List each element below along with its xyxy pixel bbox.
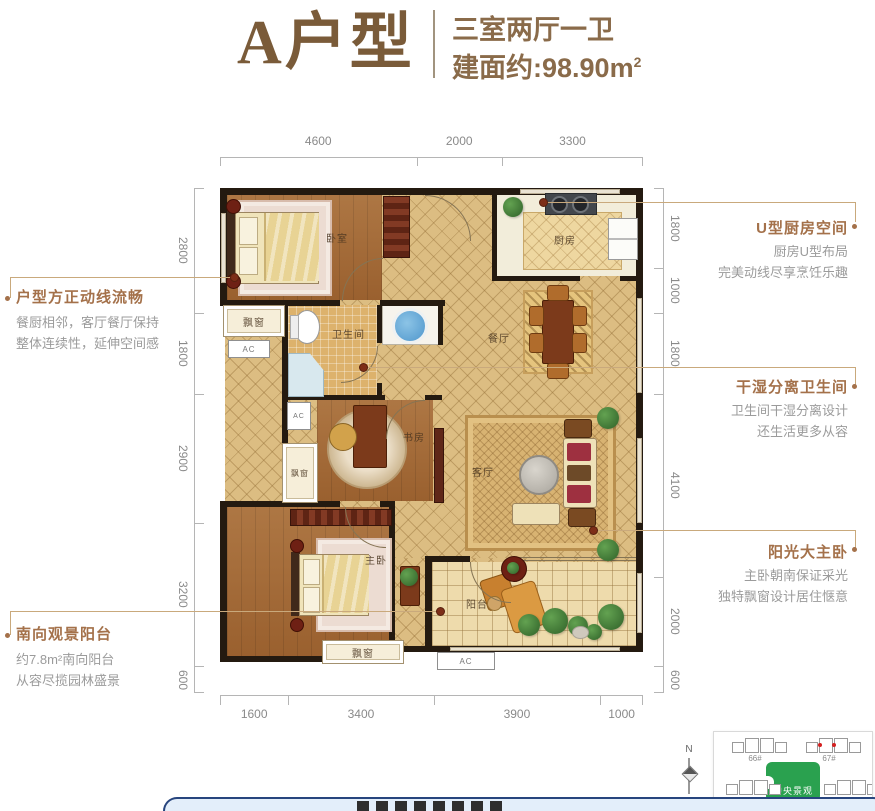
annotation-line: 卫生间干湿分离设计: [628, 400, 848, 421]
dim-label: 3300: [559, 134, 586, 148]
annotation-line: 完美动线尽享烹饪乐趣: [628, 262, 848, 283]
site-map: 66# 67# 中央景观: [713, 731, 873, 807]
nightstand: [226, 199, 241, 214]
annotation-bullet: [5, 296, 10, 301]
wall-bath-bottom-2: [425, 395, 442, 400]
bay-window-label: 飘窗: [352, 645, 374, 660]
leader-line: [10, 277, 11, 298]
dim-label: 3400: [348, 707, 375, 721]
next-section-bar: [163, 797, 875, 811]
master-bay-window: 飘窗: [322, 640, 404, 664]
bay-window-west: 飘窗: [223, 305, 285, 337]
sofa-cushion: [567, 485, 591, 503]
armchair: [564, 419, 592, 438]
dim-label: 1800: [668, 340, 682, 367]
leader-dot: [436, 607, 445, 616]
annotation-bullet: [5, 633, 10, 638]
ac-label: AC: [293, 413, 305, 420]
compass-diamond: [682, 766, 699, 783]
dimension-left: 2800 1800 2900 3200 600: [172, 188, 195, 693]
bay-window-label: 飘窗: [243, 314, 265, 329]
annotation-line: 整体连续性，延伸空间感: [16, 333, 159, 354]
building-icon: [732, 738, 787, 753]
dining-chair: [572, 306, 587, 326]
sliding-door: [510, 557, 636, 558]
unit-marker-dot: [818, 743, 822, 747]
wall-bath-right-2: [377, 383, 382, 400]
sofa-cushion: [567, 465, 591, 481]
wardrobe-hall: [383, 196, 410, 258]
nightstand: [290, 618, 304, 632]
annotation-title: 户型方正动线流畅: [16, 286, 144, 307]
annotation-line: 还生活更多从容: [628, 421, 848, 442]
dim-label: 2000: [446, 134, 473, 148]
dim-label: 600: [668, 670, 682, 690]
annotation-body: 约7.8m²南向阳台 从容尽揽园林盛景: [16, 649, 120, 691]
dimension-bottom: 1600 3400 3900 1000: [220, 695, 643, 721]
annotation-body: 主卧朝南保证采光 独特飘窗设计居住惬意: [628, 565, 848, 607]
study-chair: [329, 423, 357, 451]
tv-wall: [434, 428, 444, 503]
living-window: [637, 438, 642, 523]
annotation-body: 厨房U型布局 完美动线尽享烹饪乐趣: [628, 241, 848, 283]
leader-line: [594, 530, 856, 531]
page-title: A户型: [237, 4, 415, 82]
area-label: 建面约:: [452, 53, 542, 83]
dining-label: 餐厅: [488, 330, 510, 345]
study-desk: [353, 405, 387, 468]
ac-platform: AC: [228, 340, 270, 358]
balcony-plant: [598, 604, 624, 630]
leader-dot: [589, 526, 598, 535]
page: A户型 三室两厅一卫 建面约:98.90m2 4600 2000 3300 16…: [0, 0, 875, 811]
annotation-body: 卫生间干湿分离设计 还生活更多从容: [628, 400, 848, 442]
pillow: [303, 559, 320, 585]
ac-platform: AC: [287, 402, 311, 430]
balcony-plant: [542, 608, 568, 634]
leader-line: [855, 202, 856, 222]
annotation-title: 阳光大主卧: [628, 541, 848, 562]
dining-chair: [547, 363, 569, 379]
toilet-tank: [290, 315, 299, 339]
annotation-line: 独特飘窗设计居住惬意: [628, 586, 848, 607]
dining-table: [542, 300, 574, 364]
leader-dot: [359, 363, 368, 372]
dim-label: 3200: [176, 581, 190, 608]
leader-dot: [230, 273, 239, 282]
dim-label: 3900: [504, 707, 531, 721]
nightstand: [290, 539, 304, 553]
dining-chair: [529, 333, 544, 353]
dimension-top: 4600 2000 3300: [220, 134, 643, 158]
floor-plan: 卧室 卫生间 厨房 餐厅 书房: [220, 188, 643, 693]
leader-line: [365, 367, 856, 368]
wall-bedroom-bottom-2: [380, 300, 445, 306]
unit-marker-dot: [832, 743, 836, 747]
wall-master-left: [220, 501, 227, 662]
area-sup: 2: [634, 54, 642, 70]
bathroom-label: 卫生间: [332, 326, 365, 341]
dim-label: 600: [176, 670, 190, 690]
cutoff-text-fragment: [357, 801, 507, 811]
leader-line: [10, 611, 440, 612]
balcony-label: 阳台: [466, 596, 488, 611]
stove-burner: [551, 196, 568, 213]
plant-nook: [400, 568, 418, 586]
dim-label: 1600: [241, 707, 268, 721]
dining-chair: [529, 306, 544, 326]
ac-label: AC: [459, 657, 472, 666]
blanket: [322, 555, 369, 613]
dim-label: 4100: [668, 472, 682, 499]
wall-kitchen-left: [492, 188, 497, 280]
blanket: [264, 213, 319, 281]
annotation-body: 餐厨相邻，客厅餐厅保持 整体连续性，延伸空间感: [16, 312, 159, 354]
area-subtitle: 建面约:98.90m2: [452, 47, 641, 84]
pillow: [239, 247, 258, 275]
leader-line: [545, 202, 856, 203]
dining-chair: [572, 333, 587, 353]
balcony-window-south: [450, 647, 620, 651]
dim-label: 2800: [176, 237, 190, 264]
bay-window-label: 飘窗: [291, 468, 309, 479]
living-label: 客厅: [472, 464, 494, 479]
master-label: 主卧: [365, 552, 387, 567]
pillow: [303, 587, 320, 613]
annotation-title: U型厨房空间: [628, 217, 848, 238]
bedroom-label: 卧室: [326, 230, 348, 245]
wall-bath-right: [377, 305, 382, 343]
annotation-line: 主卧朝南保证采光: [628, 565, 848, 586]
plant-kitchen: [503, 197, 523, 217]
armchair: [568, 508, 596, 527]
bay-window-study: 飘窗: [282, 443, 318, 503]
sliding-door-2: [510, 560, 636, 561]
building-icon: [824, 780, 873, 795]
bedroom-window: [221, 213, 226, 283]
dining-chair: [547, 285, 569, 301]
ac-label: AC: [242, 345, 255, 354]
compass-n-label: N: [676, 744, 702, 755]
dim-label: 4600: [305, 134, 332, 148]
annotation-title: 南向观景阳台: [16, 623, 112, 644]
leader-line: [10, 277, 236, 278]
balcony-plant: [518, 614, 540, 636]
building-icon: [726, 780, 781, 795]
sofa-cushion: [567, 443, 591, 461]
annotation-line: 厨房U型布局: [628, 241, 848, 262]
wall-master-top: [220, 501, 340, 507]
annotation-line: 约7.8m²南向阳台: [16, 649, 120, 670]
annotation-line: 从容尽揽园林盛景: [16, 670, 120, 691]
annotation-line: 餐厨相邻，客厅餐厅保持: [16, 312, 159, 333]
annotation-bullet: [852, 384, 857, 389]
balcony-stone: [572, 626, 589, 639]
annotation-bullet: [852, 547, 857, 552]
plant-living: [597, 407, 619, 429]
leader-line: [10, 611, 11, 635]
coffee-table: [512, 503, 560, 525]
plant-living: [597, 539, 619, 561]
wall-kitchen-bottom: [492, 276, 580, 281]
leader-dot: [539, 198, 548, 207]
area-value: 98.90m: [542, 53, 634, 83]
round-table: [519, 455, 559, 495]
dim-label: 2000: [668, 608, 682, 635]
pillow: [239, 217, 258, 245]
wall-balcony-left: [425, 562, 432, 646]
dim-label: 1000: [608, 707, 635, 721]
header-divider: [433, 10, 435, 78]
ac-platform: AC: [437, 652, 495, 670]
layout-subtitle: 三室两厅一卫: [452, 15, 614, 46]
basin-sink: [392, 308, 428, 344]
compass: N: [676, 744, 702, 800]
annotation-bullet: [852, 224, 857, 229]
stove-burner: [572, 196, 589, 213]
kitchen-label: 厨房: [554, 232, 576, 247]
dim-label: 1800: [176, 340, 190, 367]
wall-alcove-right: [438, 300, 443, 345]
dim-label: 2900: [176, 445, 190, 472]
annotation-title: 干湿分离卫生间: [628, 376, 848, 397]
